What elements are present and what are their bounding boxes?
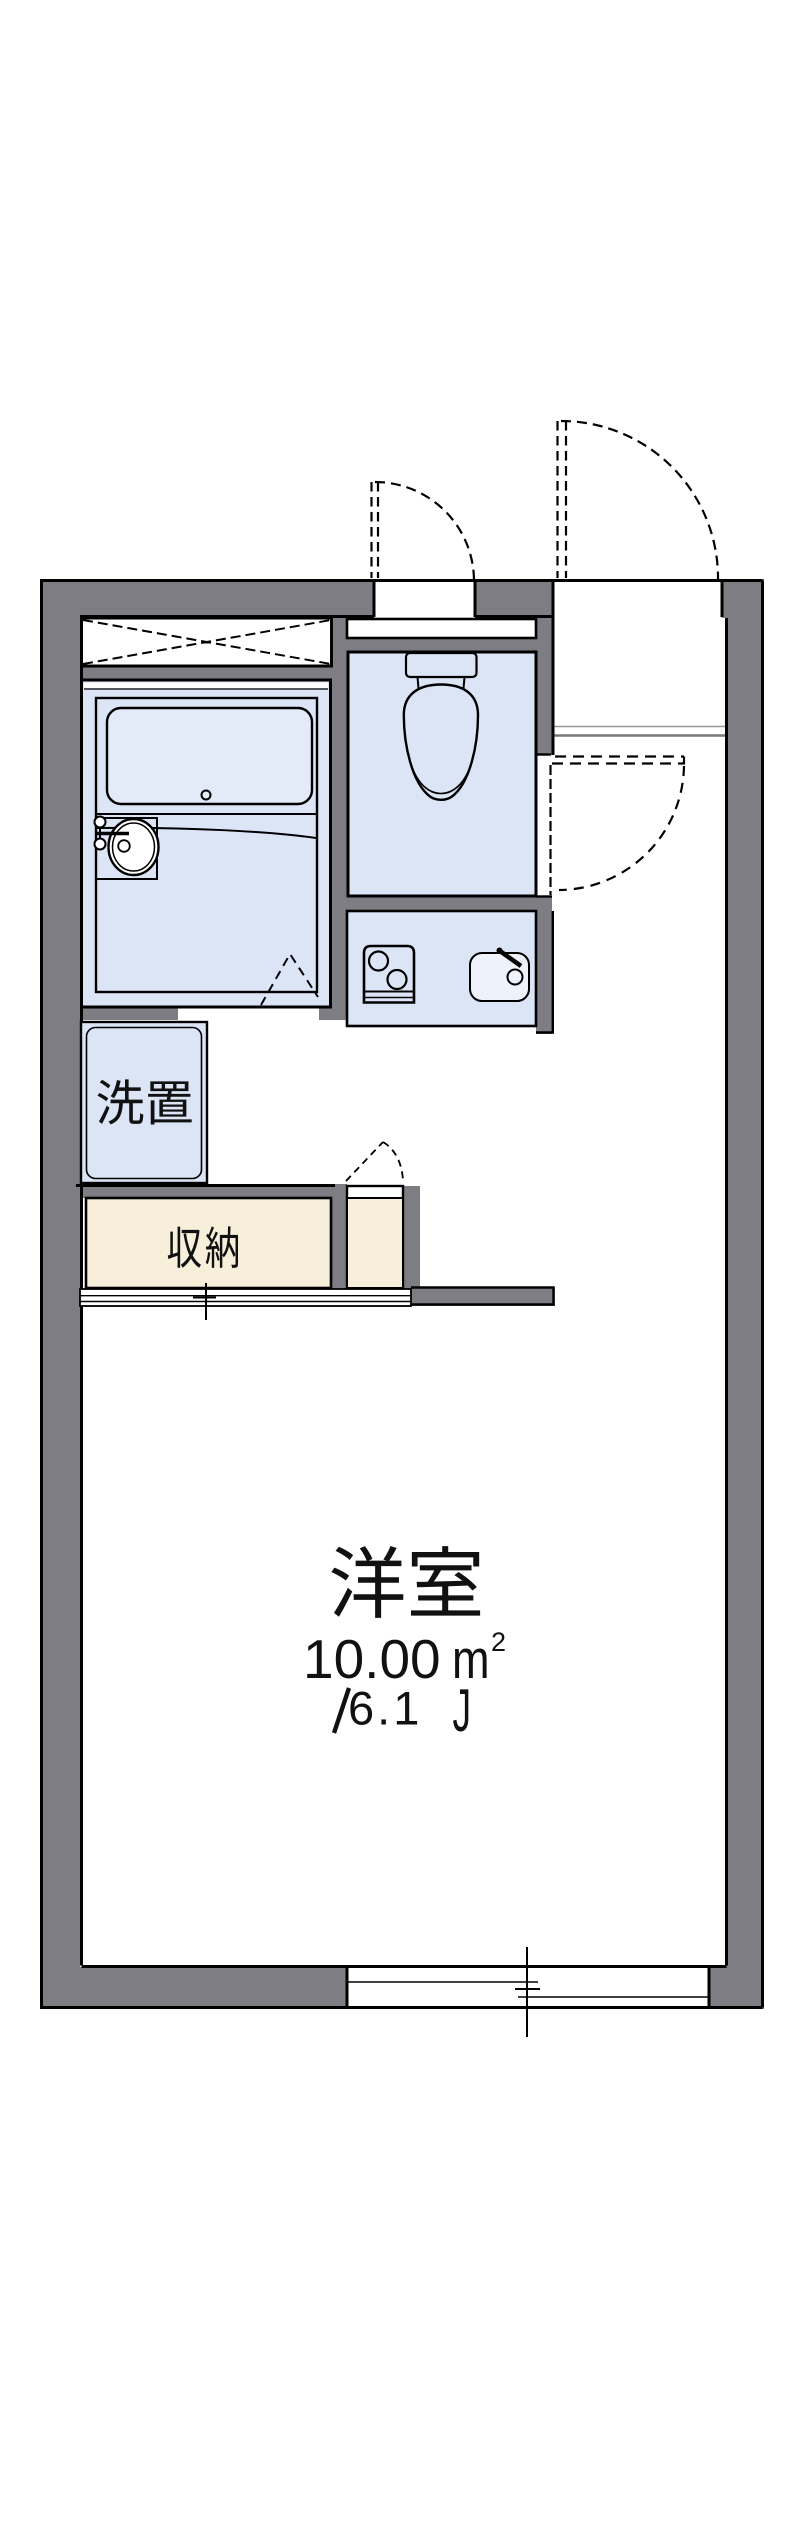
svg-text:6.1: 6.1 — [348, 1682, 422, 1735]
svg-text:J: J — [453, 1677, 472, 1744]
svg-text:2: 2 — [491, 1627, 506, 1657]
